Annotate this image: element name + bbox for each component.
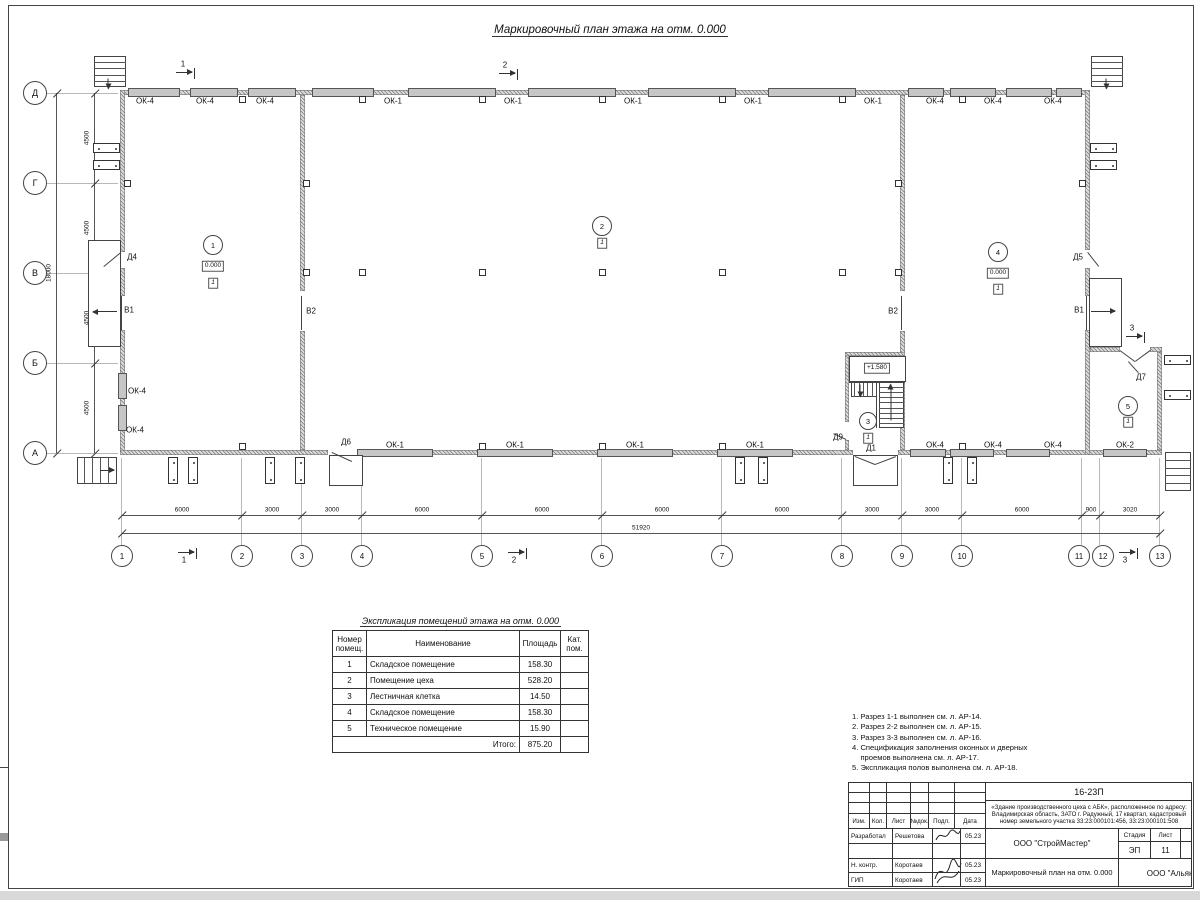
column-mark <box>599 443 606 450</box>
axis-line <box>961 458 962 545</box>
plan-label: 2 <box>503 61 507 70</box>
stair-tread <box>879 397 904 398</box>
wall-segment <box>120 450 328 455</box>
stair-flight <box>1165 452 1191 491</box>
revision-cell <box>929 783 955 793</box>
grid-bubble-row: Г <box>23 171 47 195</box>
date-cell: 05.23 <box>961 873 986 887</box>
revision-cell: №док. <box>911 814 929 829</box>
stair-tread <box>94 75 126 76</box>
bolt-dot <box>173 479 175 481</box>
revision-cell <box>887 783 911 793</box>
section-tick <box>194 68 196 79</box>
bolt-dot <box>270 479 272 481</box>
sheet-name: Маркировочный план на отм. 0.000 <box>986 859 1119 887</box>
pilaster <box>1090 160 1117 170</box>
arrowhead-icon <box>187 69 193 75</box>
table-cell <box>561 689 589 705</box>
signature-cell <box>933 859 961 873</box>
grid-bubble-column: 4 <box>351 545 373 567</box>
window-symbol <box>1006 449 1050 457</box>
section-tick <box>1137 548 1139 559</box>
elevation-mark: 1 <box>597 238 607 249</box>
axis-line <box>601 458 602 545</box>
window-symbol <box>118 373 127 399</box>
direction-arrow-icon <box>1126 336 1142 337</box>
revision-cell <box>929 793 955 803</box>
dim-line <box>56 93 57 453</box>
pilaster <box>758 457 768 484</box>
wall-segment <box>300 95 305 291</box>
revision-cell <box>887 793 911 803</box>
column-mark <box>1079 180 1086 187</box>
name-cell: Коротаев <box>893 873 933 887</box>
stair-flight <box>1091 56 1123 87</box>
stair-flight <box>94 56 126 87</box>
total-cat <box>561 737 589 753</box>
grid-bubble-column: 6 <box>591 545 613 567</box>
column-mark <box>895 269 902 276</box>
wall-segment <box>1157 352 1162 450</box>
stair-tread <box>1091 62 1123 63</box>
section-tick <box>517 69 519 80</box>
axis-line <box>901 458 902 545</box>
bolt-dot <box>1186 395 1188 397</box>
window-symbol <box>1103 449 1147 457</box>
role-cell: ГИП <box>849 873 893 887</box>
table-cell: 5 <box>333 721 367 737</box>
grid-bubble-column: 9 <box>891 545 913 567</box>
direction-arrow-icon <box>508 552 524 553</box>
section-tick <box>196 548 198 559</box>
plan-line <box>1087 252 1099 267</box>
signature-cell <box>933 829 961 844</box>
grid-bubble-column: 12 <box>1092 545 1114 567</box>
grid-bubble-row: Д <box>23 81 47 105</box>
plan-label: ОК-1 <box>504 97 522 106</box>
plan-label: В2 <box>888 307 898 316</box>
dim-text: 51920 <box>632 525 650 532</box>
direction-arrow-icon <box>499 73 515 74</box>
revision-cell <box>849 803 870 814</box>
stair-tread <box>94 81 126 82</box>
bolt-dot <box>98 148 100 150</box>
direction-arrow-icon <box>1091 311 1115 312</box>
plan-label: ОК-4 <box>256 97 274 106</box>
column-mark <box>959 443 966 450</box>
plan-line <box>1135 350 1151 362</box>
stair-tread <box>879 413 904 414</box>
dim-text: 4500 <box>84 401 91 415</box>
stair-tread <box>94 62 126 63</box>
wall-segment <box>1085 90 1090 250</box>
plan-label: 3 <box>1123 556 1127 565</box>
plan-label: ОК-4 <box>1044 441 1062 450</box>
room-schedule-title: Экспликация помещений этажа на отм. 0.00… <box>332 616 589 626</box>
date-cell <box>961 844 986 859</box>
dim-text: 4500 <box>84 131 91 145</box>
date-cell: 05.23 <box>961 829 986 844</box>
direction-arrow-icon <box>93 311 117 312</box>
outline-rect <box>853 455 898 486</box>
plan-label: ОК-4 <box>984 97 1002 106</box>
arrowhead-icon <box>1137 333 1143 339</box>
arrowhead-icon <box>1110 308 1116 314</box>
elevation-mark: 0.000 <box>987 268 1009 279</box>
revision-cell <box>911 803 929 814</box>
plan-line <box>901 296 902 330</box>
col-room-number: Номер помещ. <box>333 631 367 657</box>
room-number-bubble: 5 <box>1118 396 1138 416</box>
dim-text: 900 <box>1086 507 1097 514</box>
stair-tread <box>879 392 904 393</box>
bolt-dot <box>98 165 100 167</box>
bolt-dot <box>173 462 175 464</box>
role-cell: Н. контр. <box>849 859 893 873</box>
direction-arrow-icon <box>178 552 194 553</box>
column-mark <box>359 269 366 276</box>
wall-segment <box>1090 347 1120 352</box>
plan-label: 1 <box>182 556 186 565</box>
table-cell <box>561 721 589 737</box>
table-cell: 15.90 <box>520 721 561 737</box>
grid-bubble-row: В <box>23 261 47 285</box>
arrowhead-icon <box>106 84 112 90</box>
table-row: 5Техническое помещение15.90 <box>333 721 589 737</box>
table-cell: Складское помещение <box>367 657 520 673</box>
table-cell: 1 <box>333 657 367 673</box>
wall-segment <box>845 440 849 450</box>
direction-arrow-icon <box>176 72 192 73</box>
plan-line <box>1128 361 1139 373</box>
window-symbol <box>950 449 994 457</box>
column-mark <box>839 96 846 103</box>
stair-tread <box>879 423 904 424</box>
elevation-mark: 1 <box>993 284 1003 295</box>
note-item: 4. Спецификация заполнения оконных и две… <box>852 743 1027 753</box>
pilaster <box>967 457 977 484</box>
elevation-mark: 0.000 <box>202 261 224 272</box>
section-tick <box>1144 332 1146 343</box>
stair-tread <box>1165 483 1191 484</box>
bolt-dot <box>1169 395 1171 397</box>
room-number-bubble: 4 <box>988 242 1008 262</box>
table-cell: 158.30 <box>520 705 561 721</box>
bolt-dot <box>115 165 117 167</box>
table-row: 4Складское помещение158.30 <box>333 705 589 721</box>
document-code: 16-23П <box>986 783 1192 801</box>
table-cell <box>561 657 589 673</box>
revision-cell <box>911 793 929 803</box>
drawing-sheet: Маркировочный план этажа на отм. 0.000 6… <box>0 0 1200 891</box>
pilaster <box>1164 355 1191 365</box>
table-cell: 4 <box>333 705 367 721</box>
stair-tread <box>879 402 904 403</box>
table-cell: Техническое помещение <box>367 721 520 737</box>
table-row: 3Лестничная клетка14.50 <box>333 689 589 705</box>
plan-label: 2 <box>512 556 516 565</box>
filing-mark <box>0 833 8 841</box>
bolt-dot <box>1169 360 1171 362</box>
elevation-mark: 1 <box>863 433 873 444</box>
table-cell: Помещение цеха <box>367 673 520 689</box>
column-mark <box>719 269 726 276</box>
column-mark <box>959 96 966 103</box>
bolt-dot <box>300 479 302 481</box>
grid-bubble-column: 5 <box>471 545 493 567</box>
sheets-label: Листов <box>1181 829 1192 842</box>
column-mark <box>479 269 486 276</box>
plan-label: ОК-4 <box>926 97 944 106</box>
plan-line <box>1119 350 1135 362</box>
note-item: 1. Разрез 1-1 выполнен см. л. АР-14. <box>852 712 1027 722</box>
bolt-dot <box>763 462 765 464</box>
arrowhead-icon <box>189 549 195 555</box>
grid-bubble-column: 10 <box>951 545 973 567</box>
plan-line <box>1086 296 1087 330</box>
room-number-bubble: 3 <box>859 412 877 430</box>
wall-segment <box>300 331 305 450</box>
arrowhead-icon <box>858 392 864 398</box>
grid-bubble-column: 11 <box>1068 545 1090 567</box>
bolt-dot <box>1095 165 1097 167</box>
bolt-dot <box>193 462 195 464</box>
arrowhead-icon <box>1130 549 1136 555</box>
col-room-name: Наименование <box>367 631 520 657</box>
plan-label: Д6 <box>341 438 351 447</box>
revision-cell <box>955 803 986 814</box>
name-cell: Решетова <box>893 829 933 844</box>
stair-tread <box>84 457 85 484</box>
stair-tread <box>94 68 126 69</box>
table-row: 2Помещение цеха528.20 <box>333 673 589 689</box>
plan-label: ОК-1 <box>744 97 762 106</box>
total-value: 875.20 <box>520 737 561 753</box>
revision-cell: Кол. <box>870 814 887 829</box>
dim-text: 6000 <box>775 507 789 514</box>
organization: ООО "СтройМастер" <box>986 829 1119 859</box>
grid-bubble-column: 1 <box>111 545 133 567</box>
plan-label: ОК-4 <box>136 97 154 106</box>
outline-rect <box>1089 278 1122 347</box>
plan-label: ОК-2 <box>1116 441 1134 450</box>
table-cell <box>561 705 589 721</box>
name-cell <box>893 844 933 859</box>
filing-mark <box>0 767 8 768</box>
stair-tread <box>1091 68 1123 69</box>
title-block: Изм.Кол.Лист№док.Подл.ДатаРазработалРеше… <box>848 782 1192 887</box>
grid-bubble-column: 7 <box>711 545 733 567</box>
plan-line <box>849 382 905 383</box>
pilaster <box>1090 143 1117 153</box>
role-cell: Разработал <box>849 829 893 844</box>
table-total-row: Итого:875.20 <box>333 737 589 753</box>
bolt-dot <box>1112 148 1114 150</box>
plan-label: Д1 <box>866 444 876 453</box>
organization-2: ООО "Альянс" <box>1119 859 1192 887</box>
dim-line <box>122 515 1160 516</box>
revision-cell: Лист <box>887 814 911 829</box>
notes-list: 1. Разрез 1-1 выполнен см. л. АР-14.2. Р… <box>852 712 1027 774</box>
table-row: 1Складское помещение158.30 <box>333 657 589 673</box>
plan-label: ОК-1 <box>384 97 402 106</box>
column-mark <box>479 96 486 103</box>
note-item: 2. Разрез 2-2 выполнен см. л. АР-15. <box>852 722 1027 732</box>
stair-tread <box>872 382 873 397</box>
pilaster <box>265 457 275 484</box>
elevation-mark: 1 <box>1123 417 1133 428</box>
axis-line <box>841 458 842 545</box>
column-mark <box>303 269 310 276</box>
room-schedule-table: Номер помещ. Наименование Площадь Кат. п… <box>332 630 589 753</box>
plan-label: Д5 <box>1073 253 1083 262</box>
wall-segment <box>900 95 905 291</box>
axis-line <box>1081 458 1082 545</box>
bolt-dot <box>763 479 765 481</box>
table-cell <box>561 673 589 689</box>
dim-line <box>122 533 1160 534</box>
pilaster <box>93 160 120 170</box>
stair-tread <box>879 408 904 409</box>
pilaster <box>188 457 198 484</box>
column-mark <box>239 443 246 450</box>
revision-cell <box>929 803 955 814</box>
table-cell: Складское помещение <box>367 705 520 721</box>
plan-label: В1 <box>124 306 134 315</box>
stair-tread <box>1091 75 1123 76</box>
dim-text: 6000 <box>1015 507 1029 514</box>
revision-cell <box>955 793 986 803</box>
dim-text: 6000 <box>655 507 669 514</box>
column-mark <box>239 96 246 103</box>
axis-line <box>241 458 242 545</box>
dim-text: 3000 <box>325 507 339 514</box>
dim-text: 6000 <box>175 507 189 514</box>
axis-line <box>721 458 722 545</box>
section-tick <box>526 548 528 559</box>
sheet-label: Лист <box>1151 829 1181 842</box>
dim-text: 6000 <box>415 507 429 514</box>
stair-tread <box>92 457 93 484</box>
plan-label: 3 <box>1130 324 1134 333</box>
revision-cell: Дата <box>955 814 986 829</box>
plan-label: ОК-4 <box>984 441 1002 450</box>
signature-cell <box>933 873 961 887</box>
dim-text: 3000 <box>925 507 939 514</box>
table-cell: 3 <box>333 689 367 705</box>
bolt-dot <box>300 462 302 464</box>
note-item: 3. Разрез 3-3 выполнен см. л. АР-16. <box>852 733 1027 743</box>
stage-label: Стадия <box>1119 829 1151 842</box>
plan-label: ОК-1 <box>746 441 764 450</box>
grid-bubble-column: 3 <box>291 545 313 567</box>
dim-text: 6000 <box>535 507 549 514</box>
plan-label: В2 <box>306 307 316 316</box>
bolt-dot <box>1112 165 1114 167</box>
col-room-area: Площадь <box>520 631 561 657</box>
elevation-mark: 1 <box>208 278 218 289</box>
sheets-value: 1 <box>1181 842 1192 859</box>
bolt-dot <box>972 462 974 464</box>
plan-label: В1 <box>1074 306 1084 315</box>
elevation-mark: +1.580 <box>864 363 890 374</box>
stage-value: ЭП <box>1119 842 1151 859</box>
note-item: 5. Экспликация полов выполнена см. л. АР… <box>852 763 1027 773</box>
direction-arrow-icon <box>108 79 109 89</box>
arrowhead-icon <box>92 309 98 315</box>
plan-label: Д7 <box>1136 373 1146 382</box>
plan-label: ОК-4 <box>126 426 144 435</box>
bolt-dot <box>1095 148 1097 150</box>
table-cell: 528.20 <box>520 673 561 689</box>
bolt-dot <box>740 462 742 464</box>
floor-plan: 6000300030006000600060006000300030006000… <box>0 0 1200 600</box>
pilaster <box>93 143 120 153</box>
table-cell: Лестничная клетка <box>367 689 520 705</box>
table-cell: 2 <box>333 673 367 689</box>
window-symbol <box>357 449 433 457</box>
column-mark <box>599 269 606 276</box>
window-symbol <box>597 449 673 457</box>
arrowhead-icon <box>109 467 115 473</box>
plan-label: ОК-4 <box>196 97 214 106</box>
revision-cell <box>870 793 887 803</box>
plan-line <box>301 296 302 330</box>
table-cell: 14.50 <box>520 689 561 705</box>
direction-arrow-icon <box>891 385 892 421</box>
bolt-dot <box>1186 360 1188 362</box>
plan-label: ОК-4 <box>1044 97 1062 106</box>
direction-arrow-icon <box>1119 552 1135 553</box>
stair-tread <box>1165 460 1191 461</box>
dim-text: 3000 <box>865 507 879 514</box>
grid-bubble-column: 13 <box>1149 545 1171 567</box>
bolt-dot <box>740 479 742 481</box>
stair-tread <box>1091 81 1123 82</box>
pilaster <box>295 457 305 484</box>
table-cell: 158.30 <box>520 657 561 673</box>
bolt-dot <box>270 462 272 464</box>
column-mark <box>303 180 310 187</box>
revision-cell <box>955 783 986 793</box>
axis-line <box>1099 458 1100 545</box>
grid-bubble-row: Б <box>23 351 47 375</box>
stair-tread <box>879 418 904 419</box>
column-mark <box>599 96 606 103</box>
room-number-bubble: 2 <box>592 216 612 236</box>
column-mark <box>895 180 902 187</box>
grid-bubble-row: А <box>23 441 47 465</box>
pilaster <box>1164 390 1191 400</box>
object-description: «Здание производственного цеха с АБК», р… <box>986 801 1192 829</box>
pilaster <box>168 457 178 484</box>
window-symbol <box>717 449 793 457</box>
grid-bubble-column: 2 <box>231 545 253 567</box>
arrowhead-icon <box>519 549 525 555</box>
direction-arrow-icon <box>860 385 861 397</box>
signature-cell <box>933 844 961 859</box>
column-mark <box>359 96 366 103</box>
name-cell: Коротаев <box>893 859 933 873</box>
revision-cell <box>887 803 911 814</box>
bolt-dot <box>948 462 950 464</box>
plan-label: ОК-1 <box>386 441 404 450</box>
plan-label: Д9 <box>833 433 843 442</box>
room-schedule: Экспликация помещений этажа на отм. 0.00… <box>332 616 589 753</box>
dim-text: 3000 <box>265 507 279 514</box>
dim-text: 4500 <box>84 221 91 235</box>
col-room-cat: Кат. пом. <box>561 631 589 657</box>
